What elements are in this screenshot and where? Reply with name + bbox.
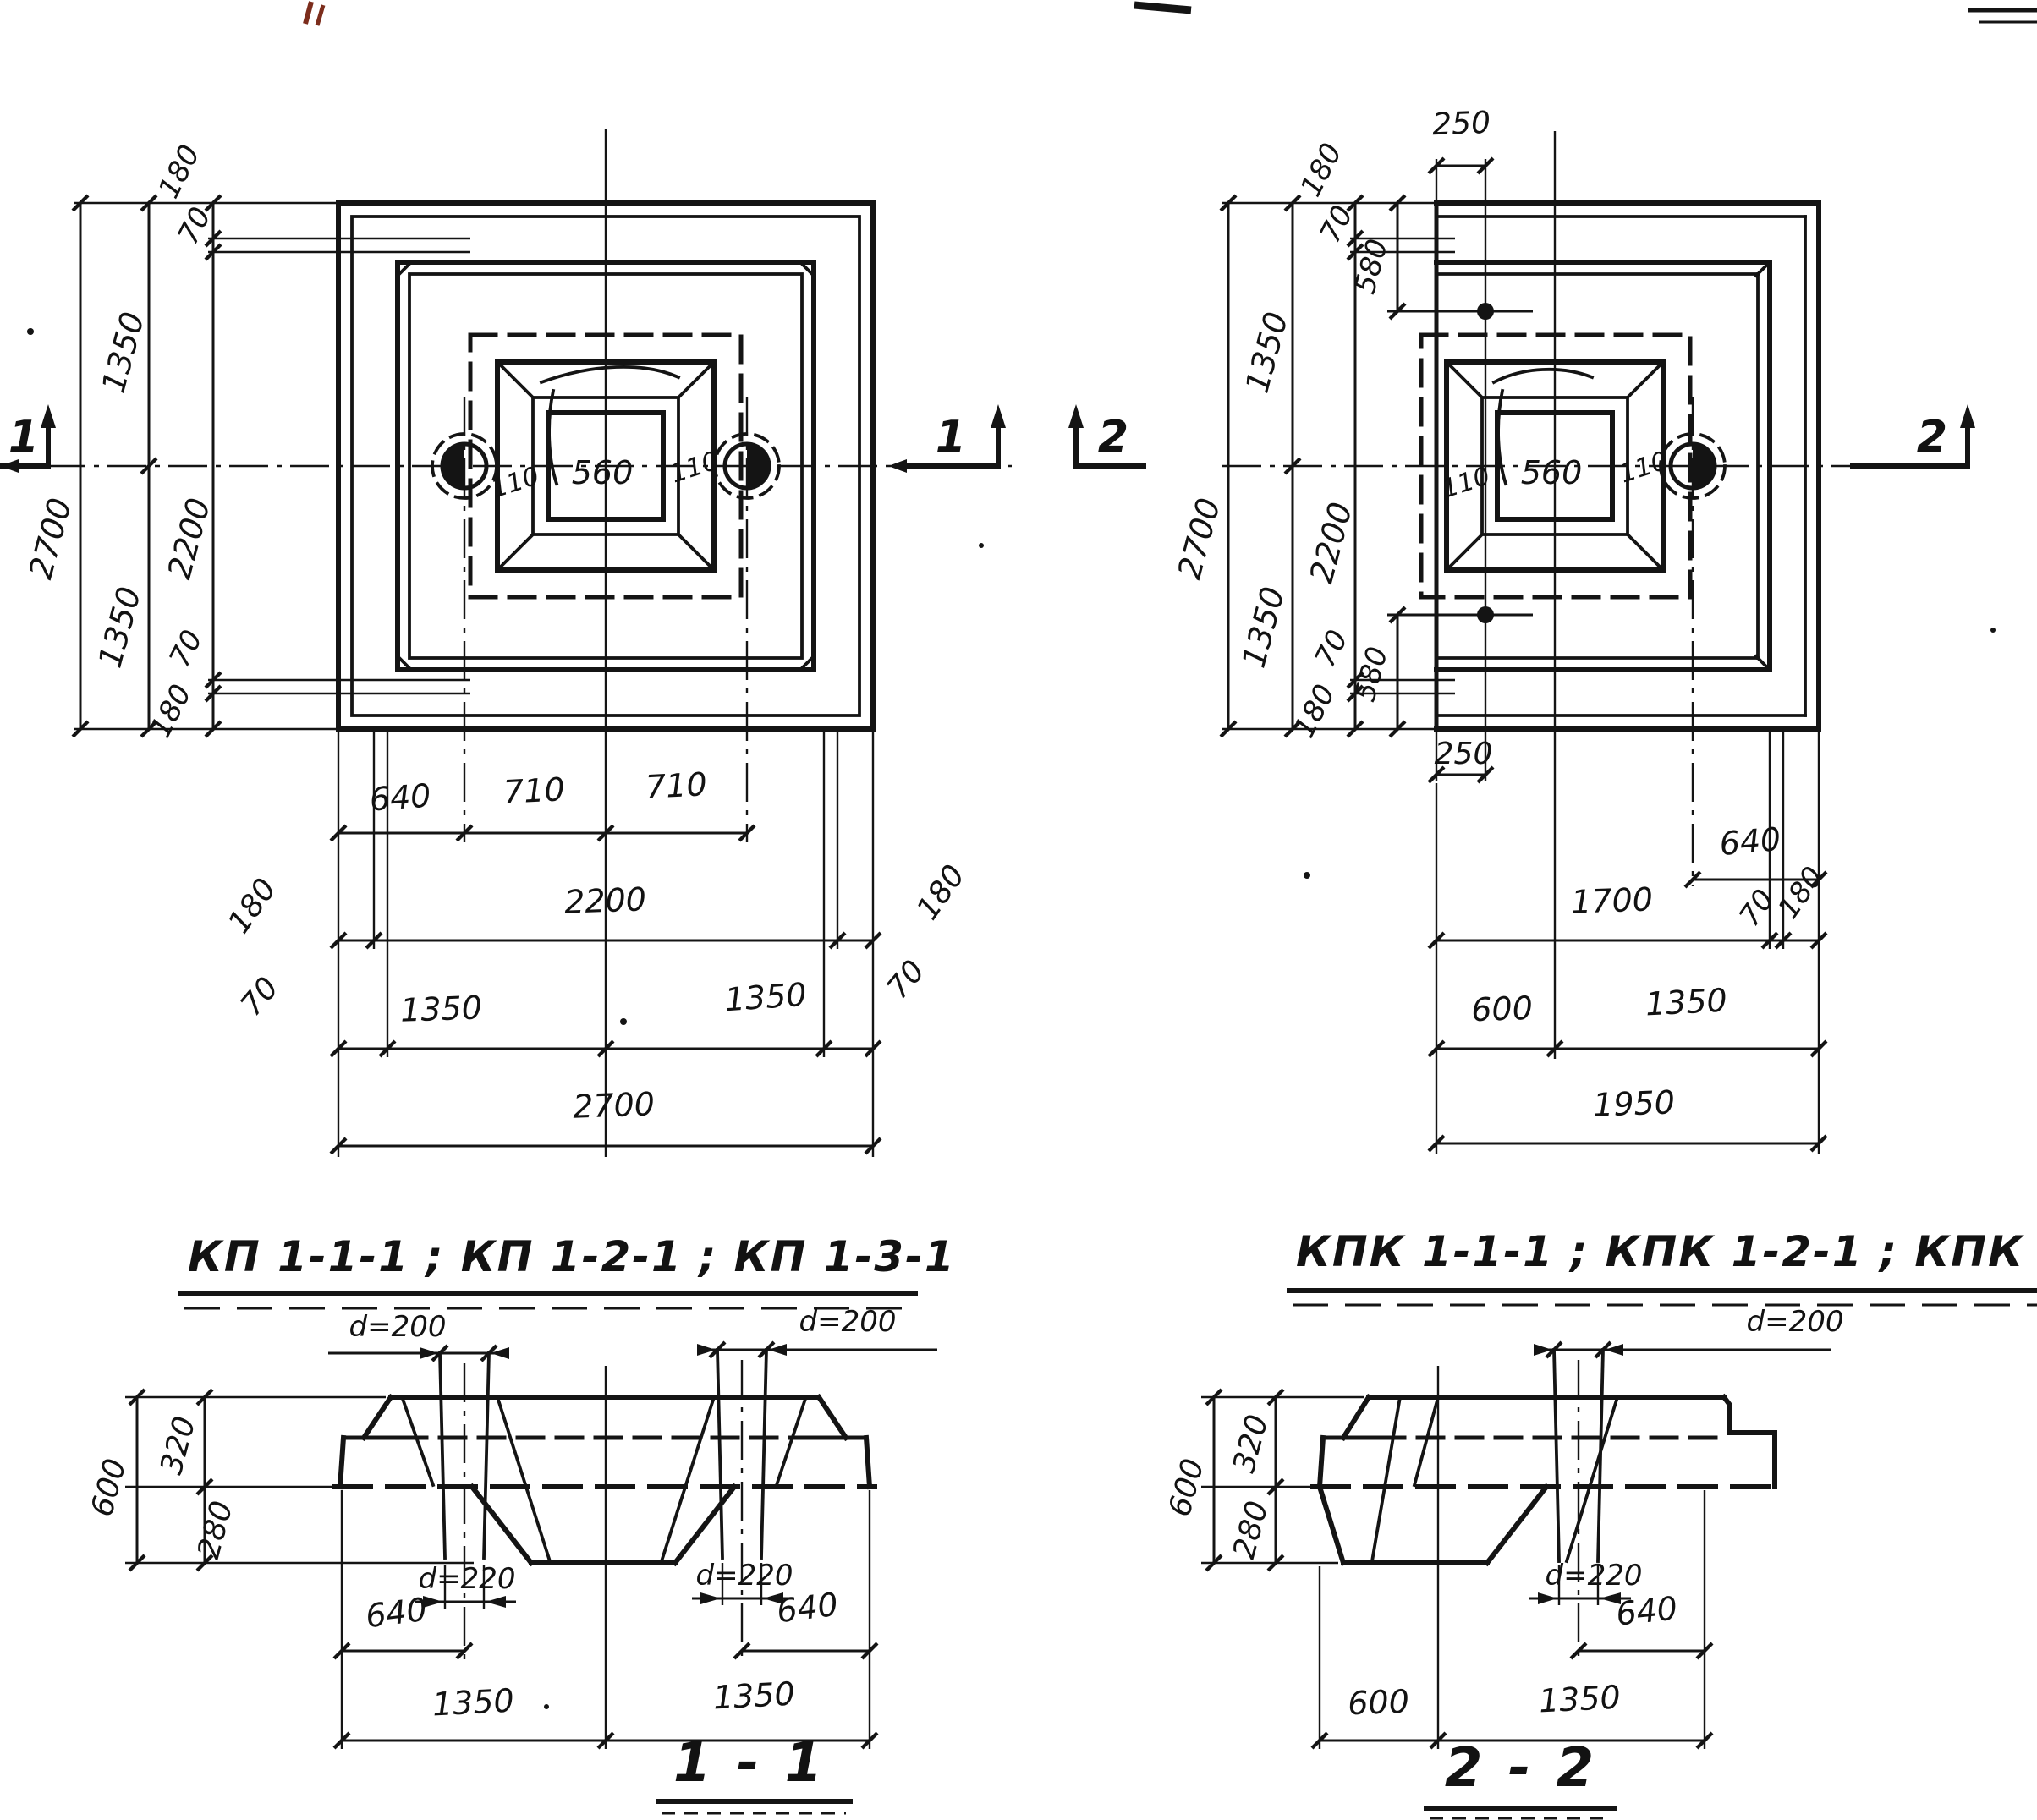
speck [979, 543, 984, 548]
title-plan-right: КПК 1-1-1 ; КПК 1-2-1 ; КПК 1-3-1 [1296, 1227, 2037, 1276]
anchor-dot-top [1477, 303, 1494, 320]
dim-180: 180 [1771, 861, 1831, 925]
foundation-drawing: 560 110 110 [0, 0, 2037, 1820]
dim-600: 600 [85, 1455, 133, 1521]
dim-row4-2700: 2700 [572, 1085, 655, 1125]
plan-left-dims-left: 2700 1350 1350 2200 180 70 70 180 [22, 140, 470, 743]
dim-640: 640 [1718, 820, 1782, 863]
plan-right-dims-left: 2700 1350 1350 2200 180 70 580 70 180 58… [1171, 138, 1455, 743]
dim-600: 600 [1471, 989, 1534, 1029]
black-streak [1134, 5, 1191, 10]
red-mark [305, 2, 311, 24]
dim-row3-1350b: 1350 [723, 976, 808, 1019]
section-1-arrow-left [41, 404, 56, 428]
dim-row1-710b: 710 [645, 765, 708, 806]
dim-1350-left: 1350 [431, 1682, 515, 1724]
dim-600: 600 [1162, 1455, 1211, 1521]
dim-d200: d=200 [1747, 1305, 1844, 1339]
s1-pile-dims-top: d=200 d=200 [328, 1305, 937, 1361]
pocket-scribble [1494, 370, 1592, 382]
dim-left-2200: 2200 [1303, 498, 1360, 587]
dim-1350-right: 1350 [712, 1675, 796, 1717]
dim-left-180-bottom: 180 [144, 679, 199, 743]
plan-right-dims-bottom: 640 1700 70 180 600 1350 1950 [1429, 732, 1831, 1154]
dim-row1-640: 640 [368, 777, 431, 819]
dim-640: 640 [1614, 1589, 1679, 1632]
plan-right-anchor-dots [1387, 303, 1533, 623]
titles: КП 1-1-1 ; КП 1-2-1 ; КП 1-3-1 КПК 1-1-1… [181, 1227, 2037, 1308]
pocket-wall [1567, 1397, 1617, 1561]
dim-pocket-560: 560 [1521, 454, 1583, 491]
section-2-arrow-left [1068, 404, 1084, 428]
pocket-wall-left [497, 1397, 550, 1561]
dim-640-left: 640 [364, 1591, 429, 1636]
section-1-title: 1 - 1 [673, 1732, 826, 1795]
speck [544, 1704, 549, 1709]
dim-left-1350-top: 1350 [95, 308, 152, 397]
dim-280: 280 [1227, 1498, 1275, 1563]
red-mark [317, 5, 323, 25]
dim-d220-right: d=220 [696, 1559, 793, 1592]
s2-dims-left: 600 320 280 [1162, 1390, 1364, 1571]
dim-left-180-top: 180 [152, 140, 207, 204]
top-right-notch [1724, 1397, 1775, 1487]
dim-250-bottom: 250 [1435, 737, 1493, 771]
dim-d220: d=220 [1546, 1559, 1643, 1592]
dim-left-2200: 2200 [161, 494, 218, 583]
dim-left-1350-top: 1350 [1238, 308, 1296, 397]
dim-1700: 1700 [1570, 880, 1653, 920]
speck [1304, 872, 1310, 879]
dim-left-2700: 2700 [1171, 494, 1228, 583]
dim-1950: 1950 [1592, 1083, 1675, 1123]
dim-d200-right: d=200 [799, 1305, 897, 1339]
dim-1350-part: 1350 [1538, 1679, 1622, 1720]
dim-70-bottom: 70 [1309, 625, 1355, 673]
dim-row2-180L: 180 [222, 873, 283, 940]
section-marker-2-right: 2 [1917, 412, 1947, 463]
title-plan-left: КП 1-1-1 ; КП 1-2-1 ; КП 1-3-1 [188, 1232, 956, 1281]
speck [620, 1018, 627, 1025]
dim-320: 320 [1227, 1412, 1275, 1477]
dim-250-top: 250 [1432, 106, 1491, 142]
dim-row3-70L: 70 [234, 971, 286, 1022]
s2-pile-dim-top: d=200 [1534, 1305, 1843, 1357]
pile-crescent [1693, 444, 1715, 488]
dim-row2-2200: 2200 [563, 880, 646, 920]
speck [27, 328, 34, 335]
dim-row1-710a: 710 [502, 770, 566, 811]
dim-180-top: 180 [1294, 138, 1349, 202]
section-1-arrow-right [991, 404, 1006, 428]
speck [1990, 628, 1996, 633]
plan-right-pile-hole [1661, 434, 1725, 498]
pocket-scribble [541, 367, 678, 382]
dim-row2-180R: 180 [910, 859, 972, 927]
section-2-arrow-right [1960, 404, 1975, 428]
blueprint-scan-page: 560 110 110 [0, 0, 2037, 1820]
section-2-2: d=200 [1162, 1305, 1843, 1818]
plan-right: 560 110 110 [1068, 106, 1975, 1154]
plan-left-dims-bottom: 640 710 710 180 2200 180 70 1350 1350 70… [222, 732, 972, 1157]
pocket-wall-right [662, 1397, 714, 1561]
dim-left-1350-bottom: 1350 [1235, 583, 1293, 672]
dim-320: 320 [154, 1413, 202, 1478]
pile-crescent-left [442, 444, 464, 488]
plan-left: 560 110 110 [0, 129, 1012, 1157]
dim-left-1350-bottom: 1350 [91, 583, 149, 672]
s1-dims-d220: d=220 d=220 [415, 1559, 793, 1609]
plan-right-dim-250-top: 250 [1429, 106, 1493, 203]
dim-row3-70R: 70 [881, 954, 932, 1006]
dim-row3-1350a: 1350 [399, 989, 482, 1028]
s1-dims-left: 600 320 280 [85, 1390, 474, 1571]
section-1-1: d=200 d=200 [85, 1305, 937, 1813]
section-2-title: 2 - 2 [1445, 1737, 1597, 1800]
plan-right-dim-250-bottom: 250 [1429, 732, 1493, 782]
dim-left-2700: 2700 [22, 494, 80, 583]
pile-crescent-right [747, 444, 769, 488]
dim-640-right: 640 [775, 1586, 840, 1631]
section-marker-1-right: 1 [936, 412, 966, 463]
section-marker-1-left: 1 [8, 412, 39, 463]
dim-d220-left: d=220 [419, 1562, 516, 1596]
dim-180-bottom: 180 [1288, 679, 1342, 743]
dim-1350: 1350 [1644, 982, 1728, 1023]
dim-left-70-bottom: 70 [163, 625, 210, 673]
section-marker-2-left: 2 [1098, 412, 1128, 463]
dim-pocket-560: 560 [572, 454, 634, 491]
anchor-dot-bottom [1477, 606, 1494, 623]
dim-600-part: 600 [1348, 1683, 1410, 1723]
dim-d200-left: d=200 [349, 1310, 447, 1344]
dim-280: 280 [191, 1498, 239, 1563]
